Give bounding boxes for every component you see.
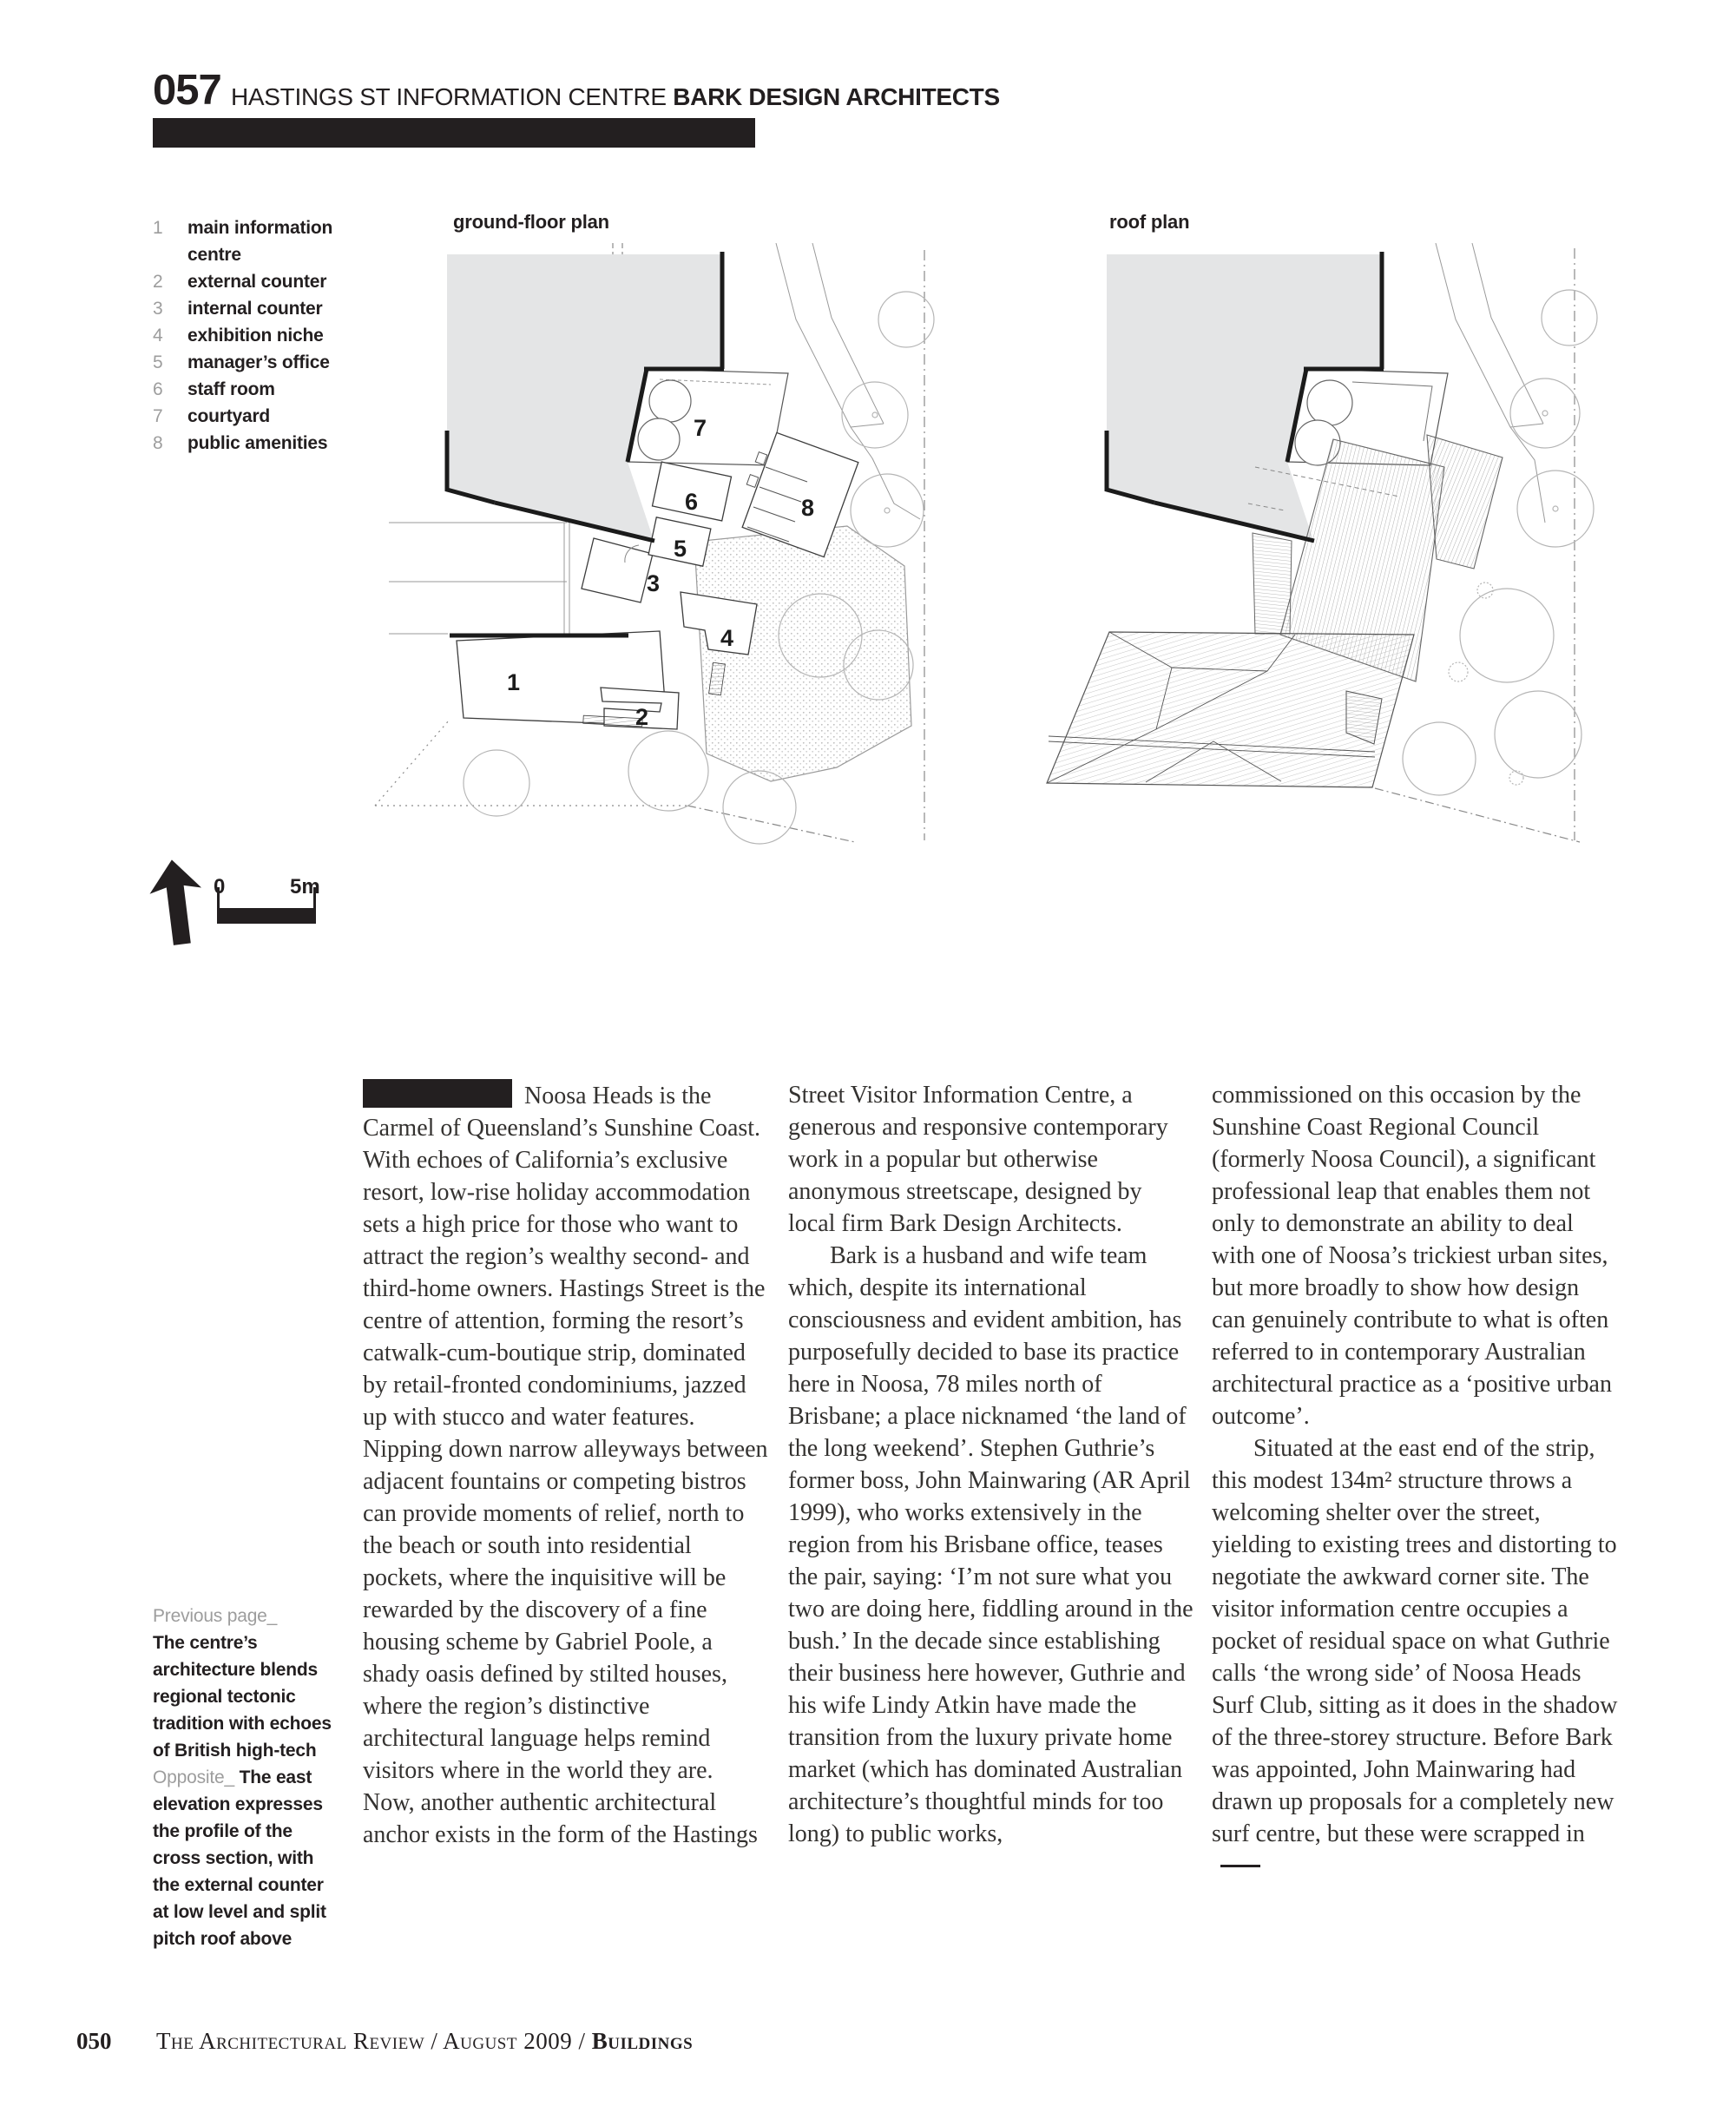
project-title-line: HASTINGS ST INFORMATION CENTRE BARK DESI… bbox=[231, 83, 1000, 111]
roof-plan-label: roof plan bbox=[1109, 211, 1189, 234]
journal-title: The Architectural Review / August 2009 / bbox=[156, 2028, 592, 2054]
legend-number: 1 bbox=[153, 214, 187, 268]
room-number-3: 3 bbox=[647, 570, 660, 596]
magazine-page: 057 HASTINGS ST INFORMATION CENTRE BARK … bbox=[0, 0, 1736, 2113]
legend-label: external counter bbox=[187, 268, 333, 295]
legend-label: internal counter bbox=[187, 295, 333, 322]
caption-opposite-text: The east elevation expresses the profile… bbox=[153, 1767, 326, 1949]
legend-item: 5manager’s office bbox=[153, 349, 333, 376]
legend-item: 6staff room bbox=[153, 376, 333, 403]
room-number-2: 2 bbox=[635, 704, 648, 730]
legend-number: 6 bbox=[153, 376, 187, 403]
legend-label: public amenities bbox=[187, 430, 333, 457]
article-text: Situated at the east end of the strip, t… bbox=[1212, 1435, 1617, 1847]
room-number-7: 7 bbox=[694, 415, 707, 441]
legend-item: 3internal counter bbox=[153, 295, 333, 322]
legend-number: 8 bbox=[153, 430, 187, 457]
legend-item: 4exhibition niche bbox=[153, 322, 333, 349]
ground-floor-plan-drawing: 1 2 3 4 5 6 7 8 bbox=[365, 243, 955, 851]
article-paragraph: Street Visitor Information Centre, a gen… bbox=[788, 1079, 1194, 1240]
page-number: 050 bbox=[76, 2028, 112, 2055]
article-column-2: Street Visitor Information Centre, a gen… bbox=[788, 1079, 1194, 1850]
article-text: Noosa Heads is the Carmel of Queensland’… bbox=[363, 1083, 768, 1848]
article-column-1: Noosa Heads is the Carmel of Queensland’… bbox=[363, 1079, 769, 1851]
room-number-6: 6 bbox=[685, 489, 698, 515]
article-paragraph: Situated at the east end of the strip, t… bbox=[1212, 1432, 1618, 1882]
intro-redaction-bar bbox=[363, 1079, 512, 1108]
room-number-1: 1 bbox=[507, 669, 520, 695]
caption-previous-text: The centre’s architecture blends regiona… bbox=[153, 1633, 332, 1761]
article-paragraph: Noosa Heads is the Carmel of Queensland’… bbox=[363, 1079, 769, 1851]
header-black-bar bbox=[153, 118, 755, 148]
legend-item: 1main information centre bbox=[153, 214, 333, 268]
courtyard-area bbox=[628, 369, 788, 465]
legend-number: 2 bbox=[153, 268, 187, 295]
legend-number: 3 bbox=[153, 295, 187, 322]
image-caption: Previous page_ The centre’s architecture… bbox=[153, 1603, 342, 1952]
project-number: 057 bbox=[153, 66, 221, 115]
scale-bar bbox=[217, 908, 316, 924]
legend-label: main information centre bbox=[187, 214, 333, 268]
architect-name: BARK DESIGN ARCHITECTS bbox=[673, 83, 1000, 110]
legend-label: courtyard bbox=[187, 403, 333, 430]
legend-label: exhibition niche bbox=[187, 322, 333, 349]
footer-journal-line: The Architectural Review / August 2009 /… bbox=[156, 2028, 693, 2055]
journal-section: Buildings bbox=[592, 2028, 693, 2054]
ground-floor-plan-label: ground-floor plan bbox=[453, 211, 609, 234]
scale-tick-right bbox=[313, 887, 316, 910]
article-column-3: commissioned on this occasion by the Sun… bbox=[1212, 1079, 1618, 1882]
adjacent-structures bbox=[389, 523, 569, 634]
plan-legend: 1main information centre 2external count… bbox=[153, 214, 333, 457]
caption-previous-label: Previous page_ bbox=[153, 1603, 342, 1629]
roof-plan-drawing bbox=[1024, 243, 1614, 851]
legend-label: staff room bbox=[187, 376, 333, 403]
legend-number: 7 bbox=[153, 403, 187, 430]
project-title: HASTINGS ST INFORMATION CENTRE bbox=[231, 83, 673, 110]
legend-number: 4 bbox=[153, 322, 187, 349]
garden-dotted-area bbox=[694, 526, 911, 781]
legend-item: 2external counter bbox=[153, 268, 333, 295]
article-paragraph: Bark is a husband and wife team which, d… bbox=[788, 1240, 1194, 1850]
legend-label: manager’s office bbox=[187, 349, 333, 376]
room-number-8: 8 bbox=[801, 495, 814, 521]
north-arrow-icon bbox=[146, 858, 208, 948]
continuation-rule bbox=[1220, 1865, 1260, 1867]
room-number-5: 5 bbox=[674, 536, 687, 562]
caption-opposite-label: Opposite_ bbox=[153, 1767, 240, 1787]
room-number-4: 4 bbox=[720, 625, 733, 651]
legend-item: 7courtyard bbox=[153, 403, 333, 430]
legend-item: 8public amenities bbox=[153, 430, 333, 457]
legend-number: 5 bbox=[153, 349, 187, 376]
article-paragraph: commissioned on this occasion by the Sun… bbox=[1212, 1079, 1618, 1432]
scale-tick-left bbox=[217, 887, 220, 910]
